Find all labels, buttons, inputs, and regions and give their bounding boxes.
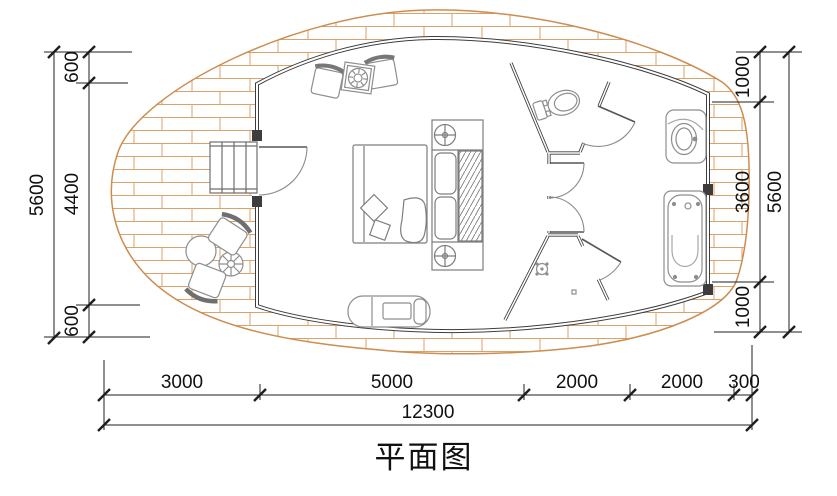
dim-bottom-seg-2: 2000 <box>556 372 598 393</box>
headboard-pillow-icon <box>435 153 456 194</box>
dim-bottom-total: 12300 <box>402 402 455 423</box>
double-bed-icon <box>353 145 427 243</box>
dim-right-seg-0: 1000 <box>733 56 754 98</box>
washbasin-icon <box>666 110 706 163</box>
dim-right-seg-2: 1000 <box>733 286 754 328</box>
dim-left-seg-1: 4400 <box>62 173 83 215</box>
drawing-title: 平面图 <box>375 440 474 475</box>
shower-head-icon <box>536 263 548 275</box>
nightstand-lamp-top-icon <box>435 125 456 146</box>
bed-pillow-icon <box>401 198 427 243</box>
headboard-block <box>432 120 483 270</box>
chaise-lounge-icon <box>348 296 430 327</box>
floor-plan-drawing: 5600 600 4400 600 1000 3600 1000 5600 30… <box>0 0 837 496</box>
floor-plan-page: 5600 600 4400 600 1000 3600 1000 5600 30… <box>0 0 837 496</box>
bathtub-icon <box>664 191 706 286</box>
dim-left-total: 5600 <box>27 174 48 216</box>
dim-bottom-seg-4: 300 <box>728 372 760 393</box>
dim-bottom-seg-0: 3000 <box>161 372 203 393</box>
side-table-icon <box>341 62 375 94</box>
entry-steps-icon <box>210 142 257 193</box>
wardrobe-rail-icon <box>459 151 482 241</box>
nightstand-lamp-bottom-icon <box>435 246 456 267</box>
dim-bottom-seg-1: 5000 <box>371 372 413 393</box>
dim-right-seg-1: 3600 <box>733 171 754 213</box>
dim-left-seg-2: 600 <box>62 305 83 337</box>
dim-right-total: 5600 <box>765 171 786 213</box>
dim-left-seg-0: 600 <box>62 51 83 83</box>
headboard-pillow-icon <box>435 197 456 239</box>
dim-bottom-seg-3: 2000 <box>661 372 703 393</box>
